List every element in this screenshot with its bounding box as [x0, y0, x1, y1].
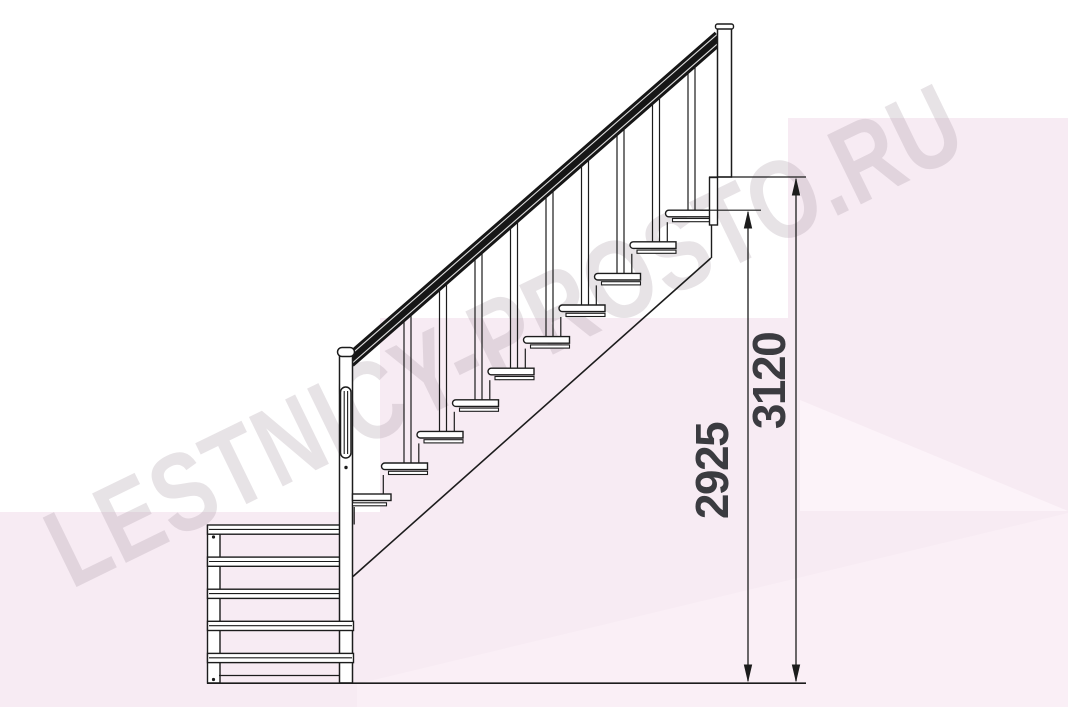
dimension-label-3120: 3120: [743, 333, 795, 429]
tread-trim: [602, 282, 641, 285]
lower-newel-post: [338, 348, 355, 684]
tread: [488, 368, 534, 375]
tread-trim: [389, 471, 428, 474]
fastener-dot: [212, 535, 215, 538]
lower-flight-treads-front: [208, 621, 354, 662]
arrow-up-icon: [744, 211, 752, 229]
lower-newel-cap: [338, 348, 355, 357]
fastener-dot: [212, 678, 215, 681]
tread-trim: [531, 345, 570, 348]
dimension-3120: 3120: [743, 178, 800, 683]
riser-lines: [383, 222, 667, 494]
stringer: [353, 225, 712, 577]
tread-trim: [673, 219, 712, 222]
staircase-drawing: 2925 3120: [0, 0, 1068, 707]
handrail: [349, 32, 720, 366]
top-newel-post: [718, 29, 732, 178]
dimension-2925: 2925: [686, 210, 761, 682]
landing-riser-board: [710, 178, 718, 226]
dimension-label-2925: 2925: [686, 422, 738, 519]
tread: [559, 305, 605, 312]
tread: [524, 337, 570, 344]
balusters: [404, 66, 695, 463]
tread: [417, 431, 463, 438]
fastener-dot: [344, 466, 347, 469]
top-newel-cap: [716, 24, 734, 29]
arrow-up-icon: [792, 178, 800, 196]
arrow-down-icon: [744, 665, 752, 683]
arrow-down-icon: [792, 665, 800, 683]
tread: [630, 242, 676, 249]
tread-trim: [566, 313, 605, 316]
tread-trim: [495, 377, 534, 380]
tread: [594, 273, 640, 280]
tread: [382, 463, 428, 470]
tread-first: [353, 494, 392, 525]
tread-trim: [460, 408, 499, 411]
tread-trim: [424, 440, 463, 443]
handrail-end-profile: [341, 387, 352, 458]
upper-landing: [709, 24, 806, 225]
tread: [452, 400, 498, 407]
lower-flight-treads-back: [208, 525, 342, 598]
tread-trim: [637, 250, 676, 253]
tread: [666, 210, 712, 217]
drawing-canvas: LESTNICY-PROSTO.RU: [0, 0, 1068, 707]
